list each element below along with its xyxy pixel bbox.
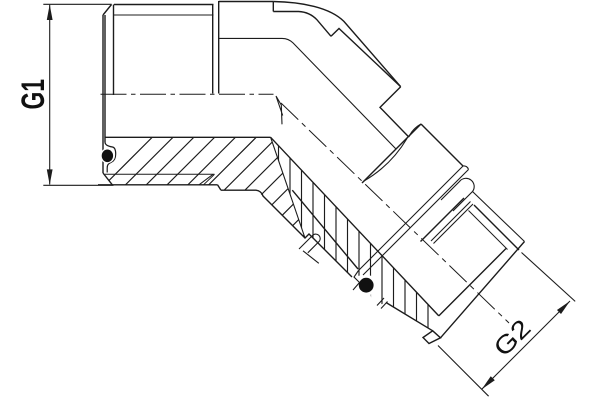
svg-text:G1: G1 <box>15 79 51 110</box>
